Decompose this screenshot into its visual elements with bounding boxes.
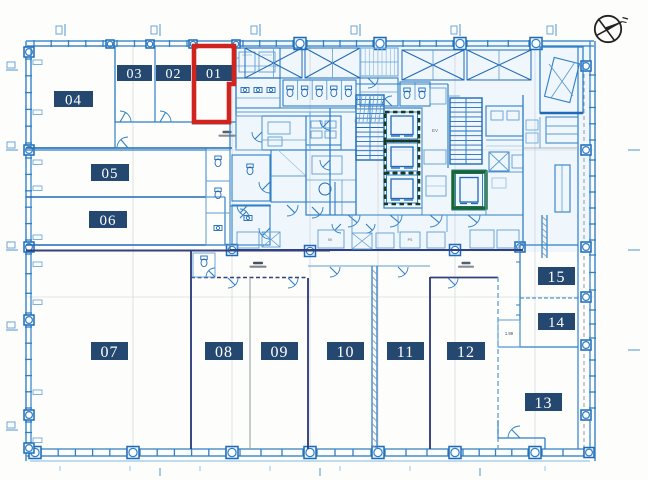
svg-text:07: 07 bbox=[101, 344, 119, 361]
svg-text:02: 02 bbox=[166, 67, 182, 82]
svg-text:05: 05 bbox=[102, 166, 119, 182]
svg-text:04: 04 bbox=[65, 92, 82, 108]
svg-text:1.99: 1.99 bbox=[505, 331, 514, 336]
svg-text:03: 03 bbox=[127, 67, 143, 82]
svg-text:SK: SK bbox=[328, 238, 333, 242]
svg-text:13: 13 bbox=[535, 395, 553, 412]
svg-text:01: 01 bbox=[206, 67, 222, 82]
svg-text:08: 08 bbox=[215, 344, 233, 361]
svg-text:EV: EV bbox=[432, 128, 438, 133]
svg-text:PS: PS bbox=[408, 238, 413, 242]
svg-text:14: 14 bbox=[548, 315, 565, 331]
svg-text:09: 09 bbox=[271, 344, 289, 361]
svg-text:12: 12 bbox=[457, 344, 475, 361]
svg-text:11: 11 bbox=[397, 344, 414, 361]
svg-text:15: 15 bbox=[548, 269, 566, 286]
svg-text:06: 06 bbox=[100, 213, 117, 229]
svg-text:10: 10 bbox=[337, 344, 355, 361]
